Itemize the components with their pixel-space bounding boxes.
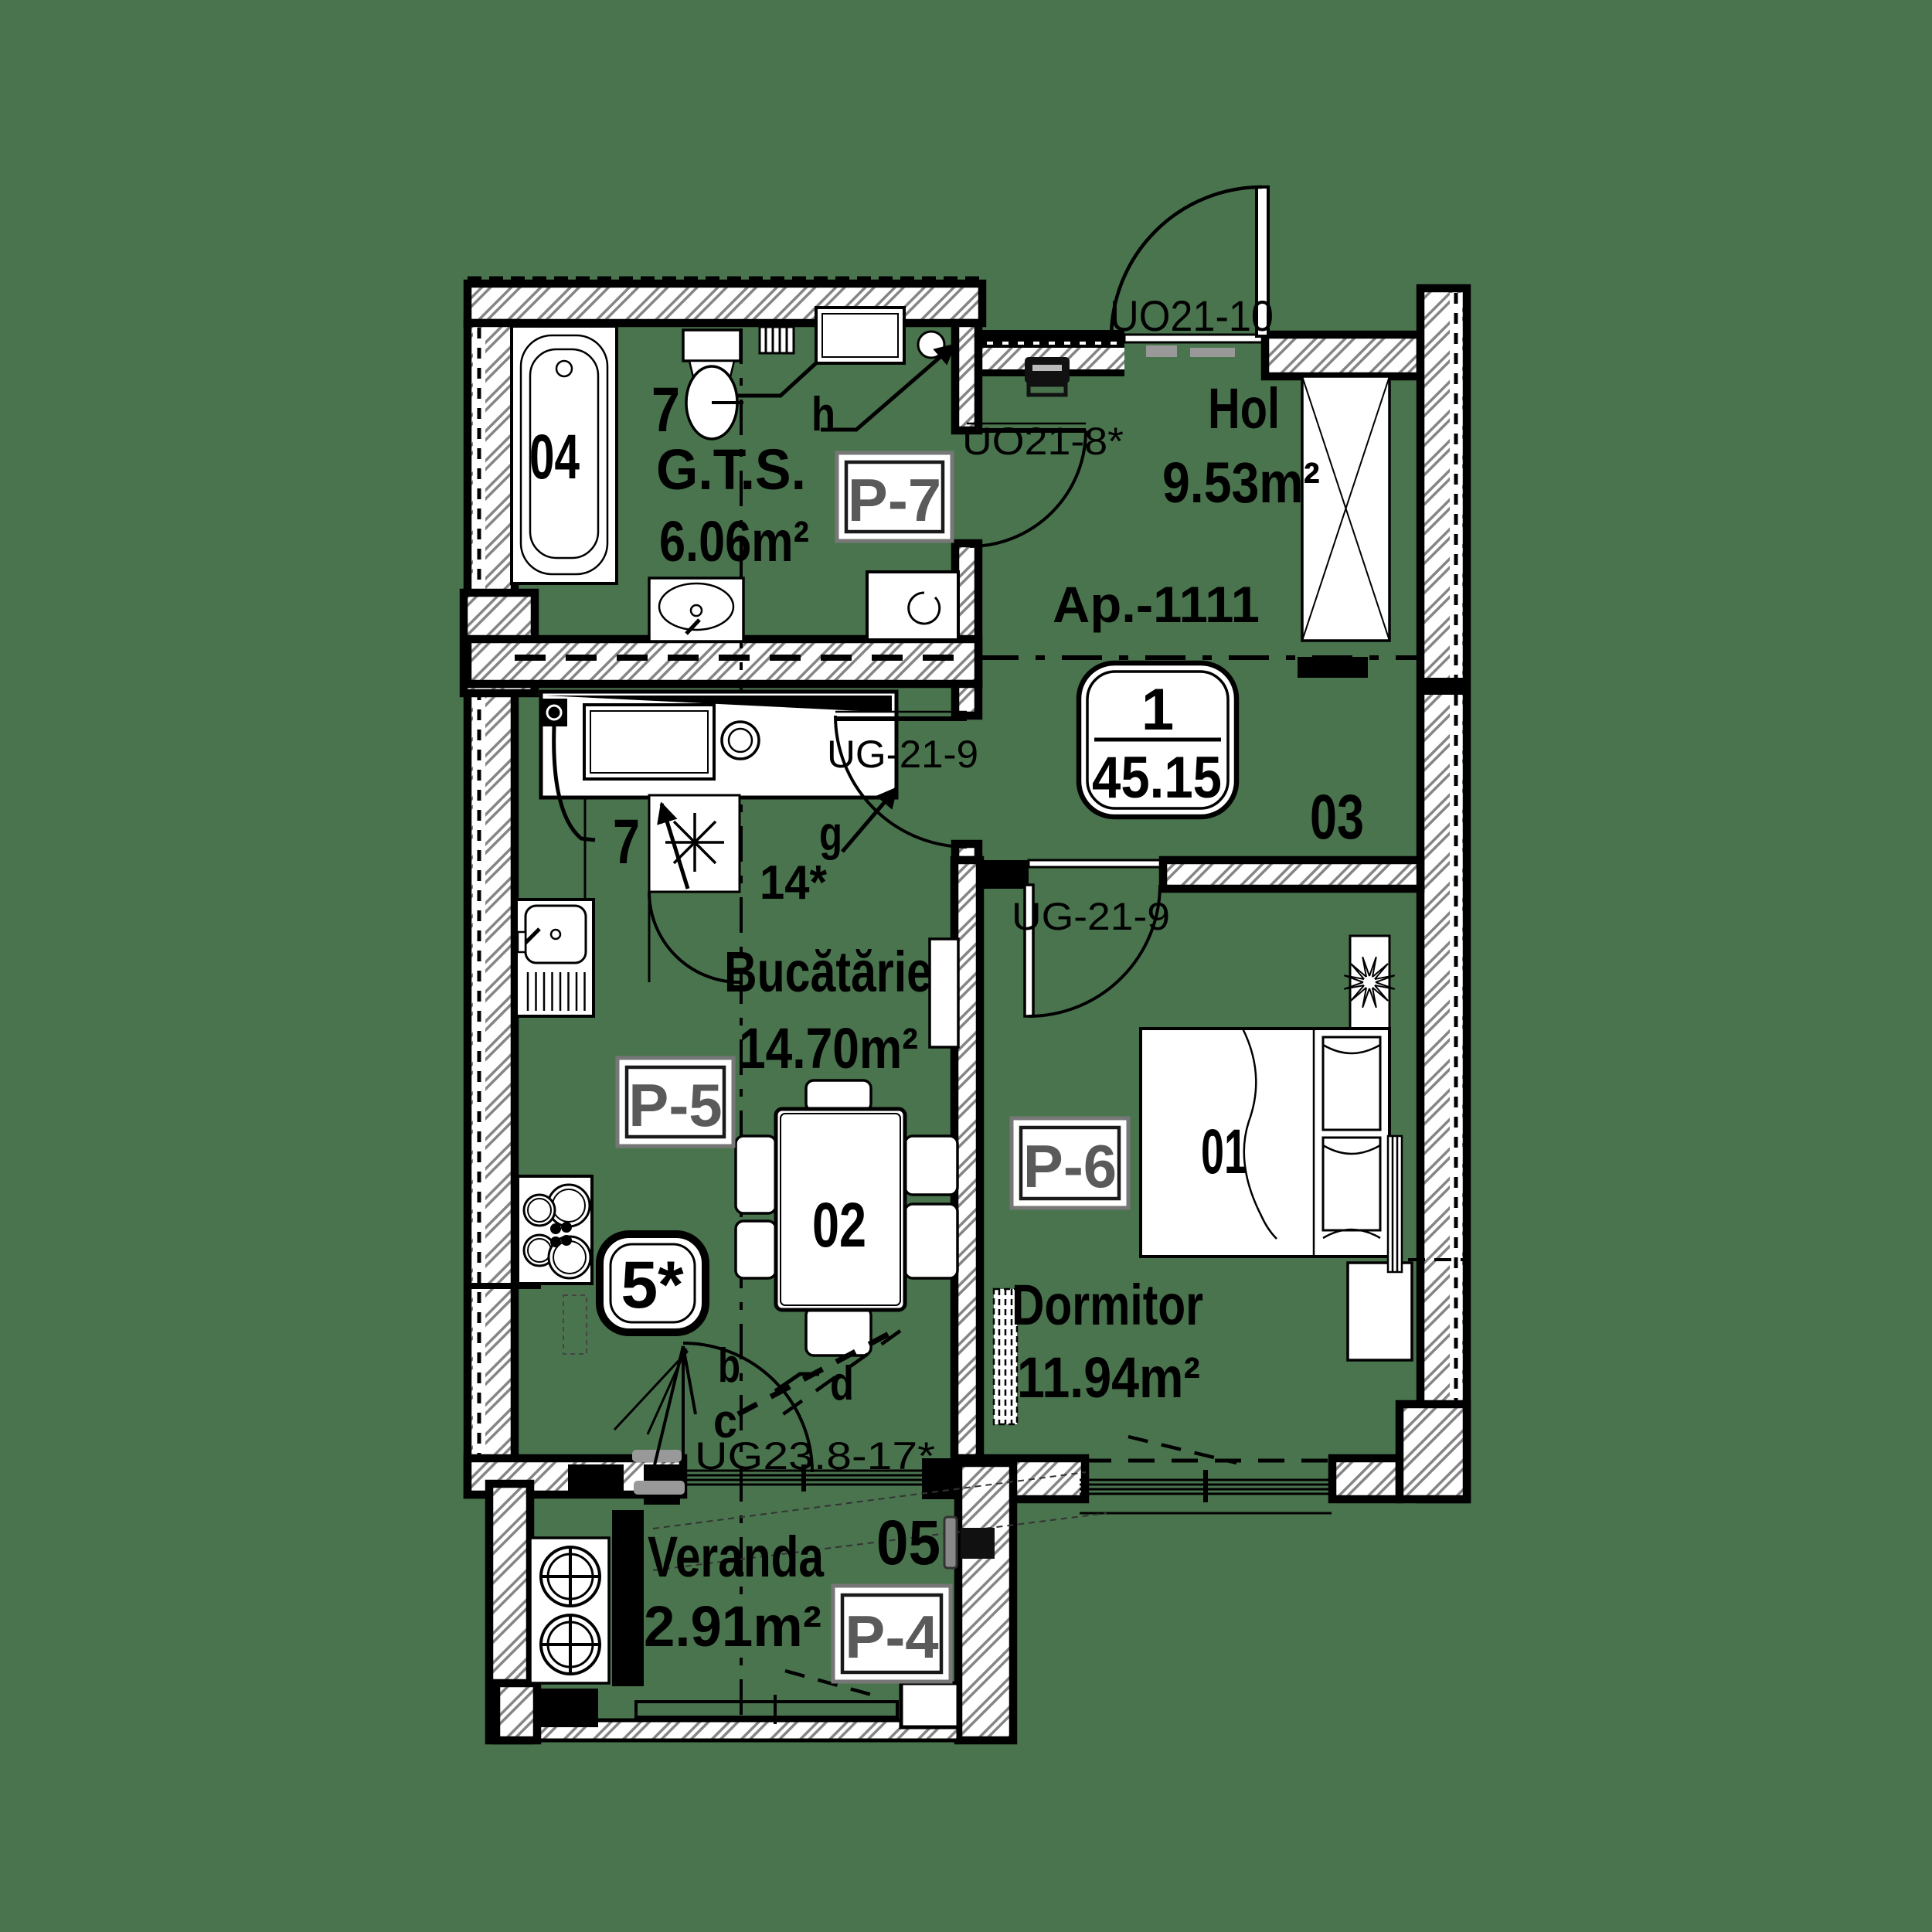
svg-text:1: 1: [1141, 677, 1174, 743]
svg-text:d: d: [830, 1357, 854, 1410]
svg-text:Veranda: Veranda: [648, 1525, 825, 1589]
svg-text:9.53m²: 9.53m²: [1162, 451, 1320, 515]
svg-text:05: 05: [876, 1508, 940, 1578]
svg-text:04: 04: [529, 422, 580, 492]
svg-text:h: h: [811, 388, 835, 441]
svg-text:6.06m²: 6.06m²: [659, 509, 809, 573]
svg-text:2.91m²: 2.91m²: [644, 1594, 821, 1658]
svg-text:P-5: P-5: [628, 1071, 722, 1139]
svg-text:g: g: [819, 808, 842, 861]
svg-text:Hol: Hol: [1208, 376, 1280, 440]
svg-text:UO21-10: UO21-10: [1110, 291, 1274, 340]
svg-text:P-4: P-4: [845, 1603, 938, 1671]
svg-text:02: 02: [812, 1190, 866, 1260]
svg-text:b: b: [718, 1339, 740, 1393]
svg-text:UO21-8*: UO21-8*: [962, 420, 1124, 463]
svg-text:7: 7: [613, 807, 640, 877]
svg-text:14.70m²: 14.70m²: [739, 1016, 918, 1080]
svg-text:UG-21-9: UG-21-9: [1012, 895, 1170, 938]
svg-text:5*: 5*: [621, 1248, 684, 1322]
svg-text:03: 03: [1310, 782, 1364, 852]
svg-text:45.15: 45.15: [1092, 745, 1222, 811]
svg-text:UG-21-9: UG-21-9: [827, 733, 978, 776]
svg-text:G.T.S.: G.T.S.: [656, 437, 806, 502]
svg-text:Dormitor: Dormitor: [1012, 1273, 1203, 1337]
svg-text:01: 01: [1201, 1117, 1247, 1187]
svg-text:11.94m²: 11.94m²: [1017, 1345, 1200, 1410]
svg-text:Bucătărie: Bucătărie: [724, 940, 932, 1004]
svg-text:Ap.-1111: Ap.-1111: [1053, 576, 1260, 633]
svg-text:14*: 14*: [760, 856, 828, 910]
svg-text:P-7: P-7: [848, 466, 941, 534]
svg-text:7: 7: [651, 375, 680, 445]
svg-text:UG23.8-17*: UG23.8-17*: [695, 1434, 935, 1478]
svg-text:P-6: P-6: [1023, 1132, 1117, 1200]
